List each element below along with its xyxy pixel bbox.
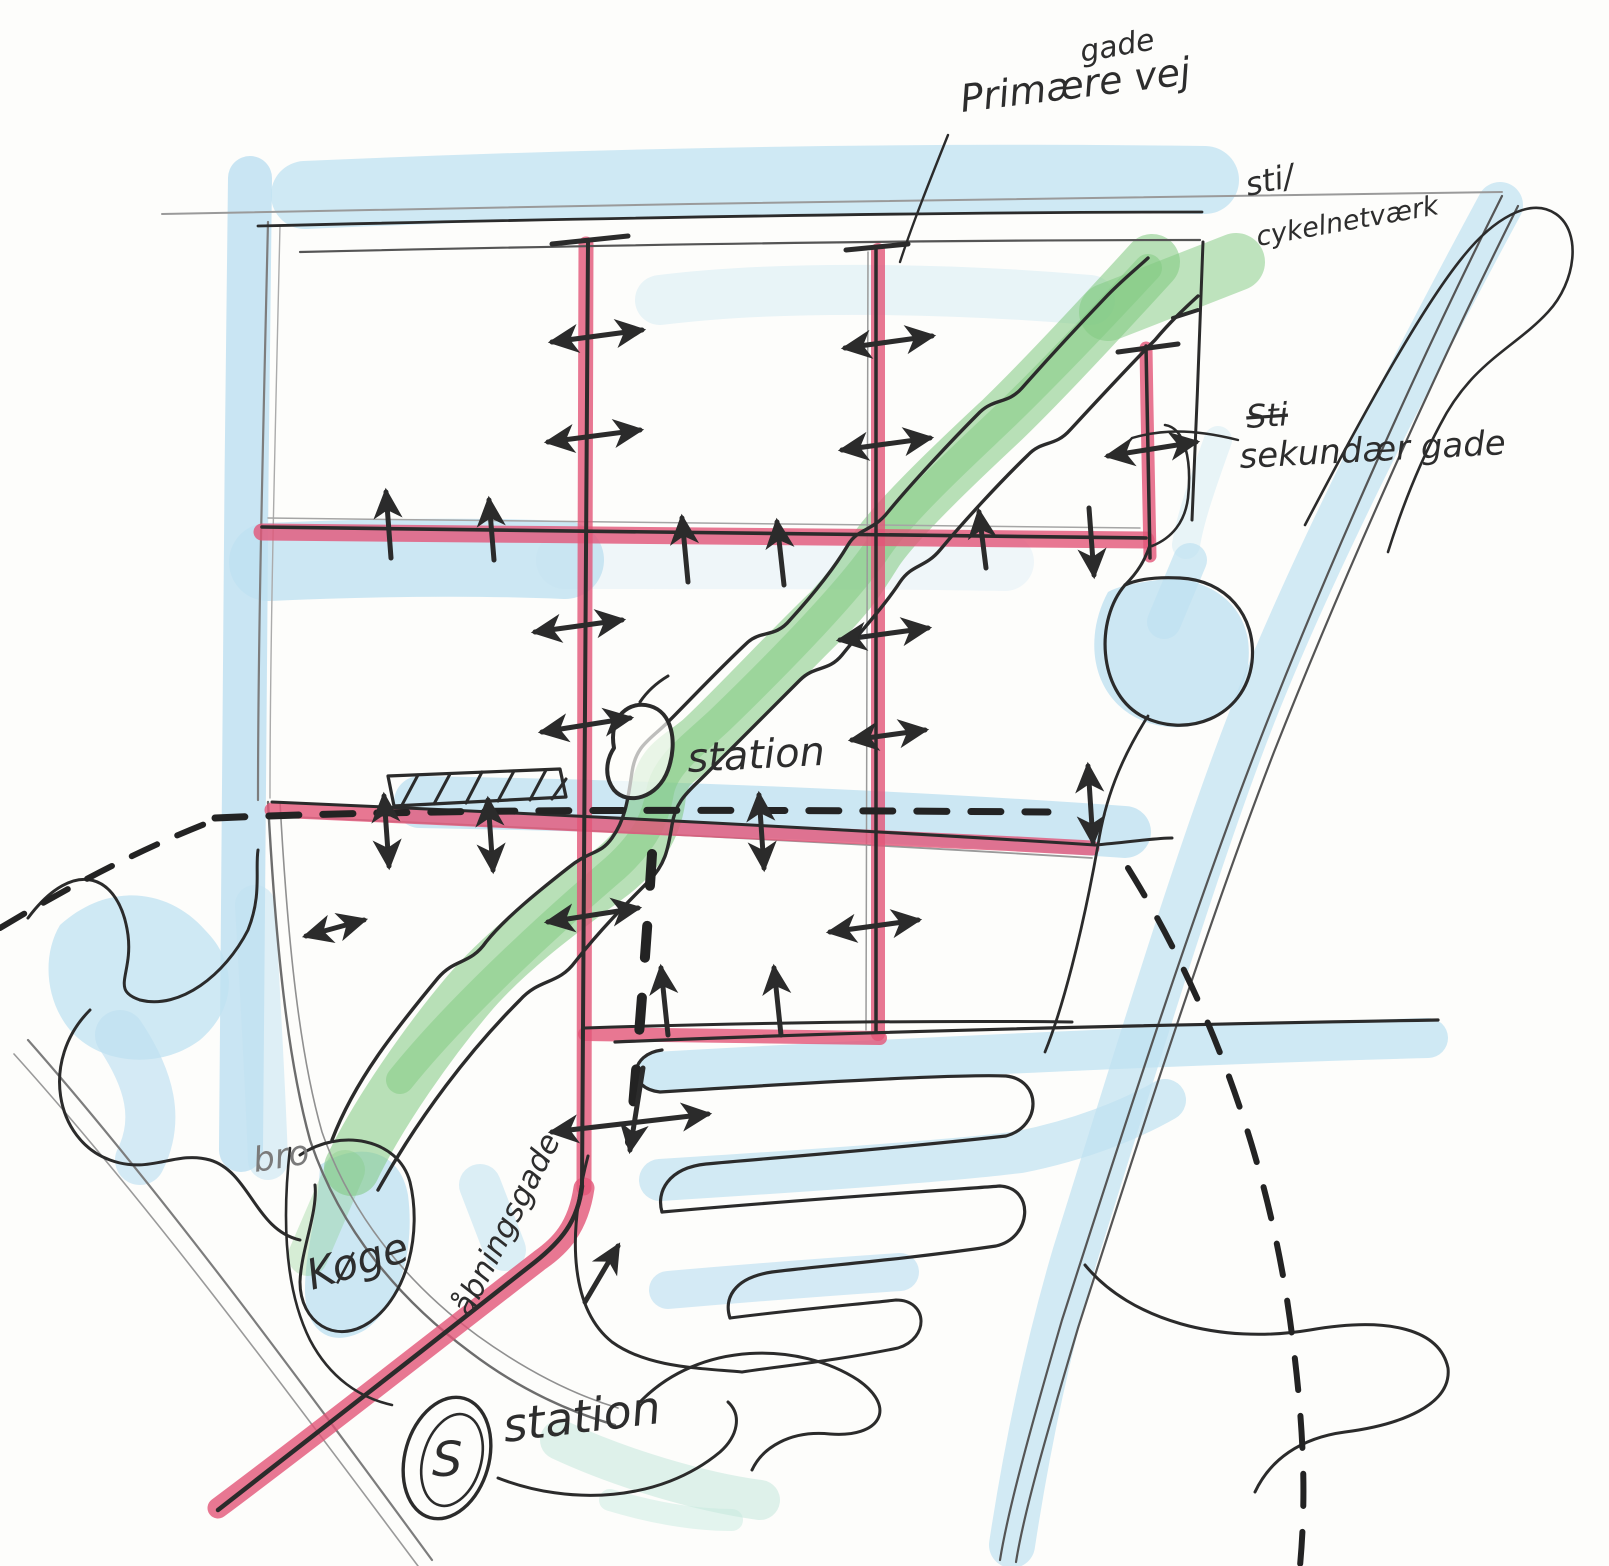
- crossing-arrow: [306, 920, 364, 936]
- water-top-band: [305, 179, 1205, 195]
- sketch-canvas: gade Primære vej sti/ cykelnetværk Sti s…: [0, 0, 1609, 1566]
- label-s-badge: S: [432, 1432, 462, 1488]
- access-arrow-up: [774, 968, 781, 1035]
- label-secondary-struck: Sti: [1245, 395, 1289, 436]
- label-bro: bro: [250, 1133, 312, 1181]
- pencil-vb-ghost: [866, 252, 868, 1030]
- water-edge-patch: [1186, 440, 1218, 545]
- pen-south-horizontal: [585, 1021, 1072, 1028]
- water-mid-band: [268, 558, 565, 562]
- water-lake-mid: [120, 1035, 150, 1160]
- tick-vertical-east-top: [846, 244, 908, 250]
- pencil-left-edge-2: [270, 226, 280, 798]
- plan-sketch-svg: gade Primære vej sti/ cykelnetværk Sti s…: [0, 0, 1609, 1566]
- label-bike-path-1: sti/: [1242, 156, 1301, 204]
- water-teal-wash-1: [560, 1440, 760, 1500]
- water-channel-neck: [1164, 560, 1190, 622]
- water-layer: [49, 178, 1500, 1545]
- crossing-arrow: [852, 730, 925, 740]
- water-connect: [255, 905, 268, 1160]
- label-bike-path-2: cykelnetværk: [1254, 190, 1442, 253]
- station-circle-tail: [640, 676, 668, 702]
- water-mid-band-faint: [565, 560, 1005, 562]
- crossing-arrow: [552, 1114, 708, 1132]
- access-arrow-down: [1089, 508, 1094, 575]
- crossing-arrow: [548, 430, 640, 442]
- access-arrow-northeast: [585, 1246, 618, 1302]
- crossing-arrow: [842, 438, 930, 450]
- grid-top-edge-2: [300, 240, 1200, 252]
- land-contour-right: [1085, 1265, 1448, 1492]
- water-harbor-finger-3: [668, 1272, 900, 1290]
- green-corridor-core: [400, 268, 1148, 1080]
- crossing-arrow: [552, 330, 642, 342]
- harbor-finger-outline-3: [730, 1300, 921, 1372]
- crossing-arrow: [845, 336, 932, 348]
- label-station-bottom: station: [500, 1380, 664, 1453]
- label-primary-street: Primære vej: [958, 49, 1194, 121]
- label-station-mid: station: [686, 729, 826, 782]
